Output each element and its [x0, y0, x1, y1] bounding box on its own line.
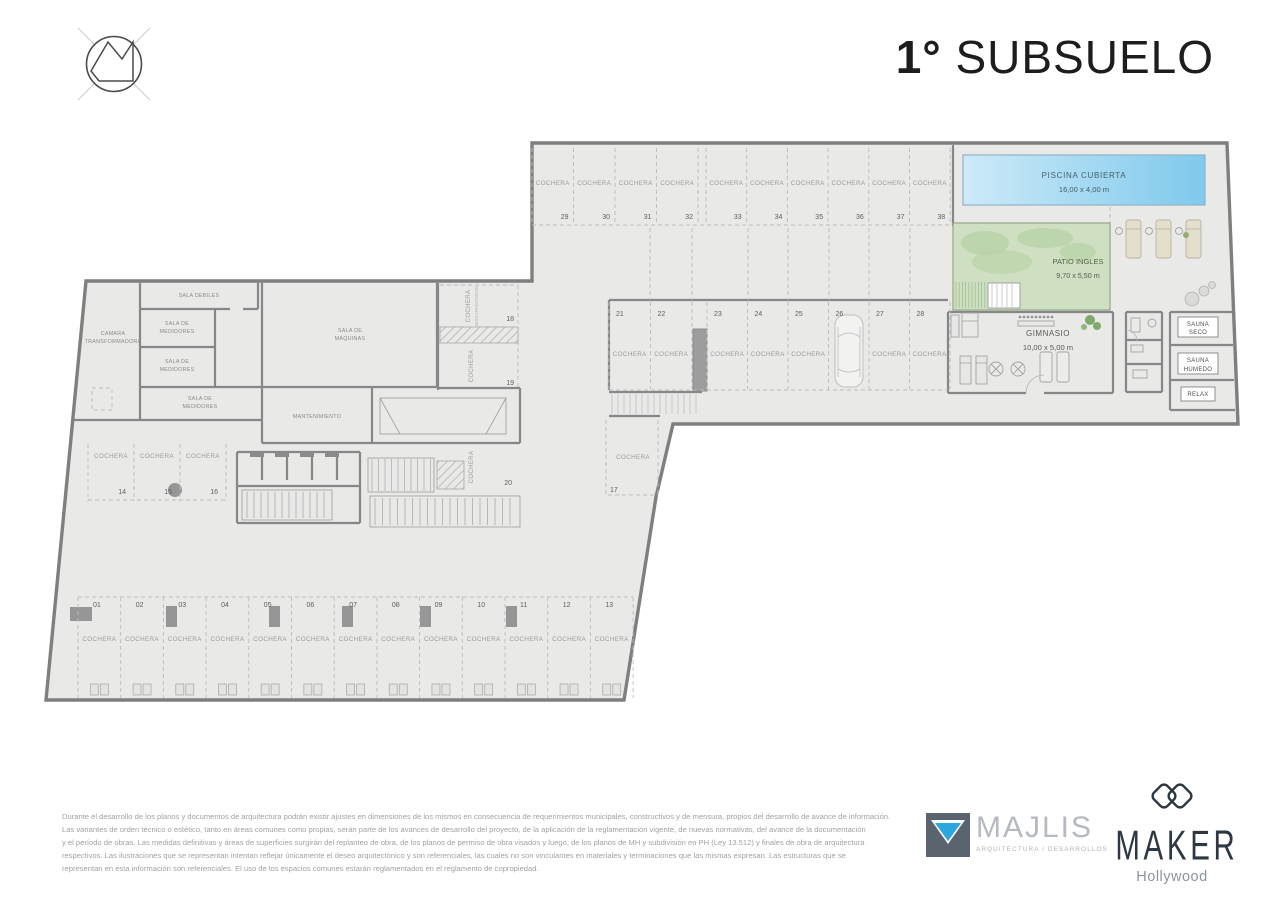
stall-label: COCHERA — [619, 180, 653, 187]
gym-dims: 10,00 x 5,00 m — [1023, 343, 1073, 352]
majlis-tagline: ARQUITECTURA / DESARROLLOS — [976, 846, 1108, 853]
wheel-stop — [432, 684, 440, 695]
pool-dims: 16,00 x 4,00 m — [1059, 185, 1109, 194]
wheel-stop — [186, 684, 194, 695]
stall-number: 16 — [210, 489, 218, 496]
stall-number: 09 — [435, 602, 443, 609]
stall-number: 05 — [264, 602, 272, 609]
ramp-hatch — [440, 327, 518, 343]
patio-dims: 9,70 x 5,50 m — [1056, 271, 1100, 280]
wheel-stop — [603, 684, 611, 695]
disclaimer-line: Las variantes de orden técnico o estétic… — [62, 824, 892, 837]
maker-sub: Hollywood — [1110, 869, 1234, 885]
stall-label: COCHERA — [125, 636, 159, 643]
stall-number: 37 — [897, 214, 905, 221]
medidores3-label-1: SALA DE — [188, 396, 212, 402]
maquinas-label-1: SALA DE — [338, 328, 362, 334]
stall18-label: COCHERA — [466, 290, 472, 323]
medidores3-label-2: MEDIDORES — [183, 404, 218, 410]
stall-label: COCHERA — [424, 636, 458, 643]
stall20-label: COCHERA — [469, 451, 475, 484]
stall-number: 01 — [93, 602, 101, 609]
stall-number: 08 — [392, 602, 400, 609]
stall-label: COCHERA — [253, 636, 287, 643]
wheel-stop — [143, 684, 151, 695]
stall-number: 11 — [520, 602, 527, 609]
stall-label: COCHERA — [613, 351, 647, 358]
stall-label: COCHERA — [168, 636, 202, 643]
elevator-shaft — [693, 329, 707, 391]
relax-label: RELAX — [1187, 392, 1208, 398]
stall-number: 27 — [876, 311, 884, 318]
disclaimer-line: respectivos. Las ilustraciones que se re… — [62, 850, 892, 863]
stall-label: COCHERA — [509, 636, 543, 643]
stall-number: 25 — [795, 311, 803, 318]
wheel-stop — [271, 684, 279, 695]
stall-number: 36 — [856, 214, 864, 221]
stall-number: 02 — [136, 602, 144, 609]
wheel-stop — [347, 684, 355, 695]
gym-name: GIMNASIO — [1026, 329, 1070, 338]
stall-number: 38 — [937, 214, 945, 221]
stall-label: COCHERA — [872, 180, 906, 187]
stall-number: 21 — [616, 311, 624, 318]
stall-label: COCHERA — [467, 636, 501, 643]
sala-debiles-label: SALA DEBILES — [179, 293, 220, 299]
stall-number: 15 — [164, 489, 172, 496]
stall17-label: COCHERA — [616, 454, 650, 461]
stall-number: 24 — [755, 311, 763, 318]
stall-number: 28 — [917, 311, 925, 318]
stall-number: 13 — [605, 602, 613, 609]
stall-label: COCHERA — [94, 453, 128, 460]
camara-label-1: CAMARA — [101, 331, 126, 337]
indoor-pool: PISCINA CUBIERTA 16,00 x 4,00 m — [963, 155, 1205, 205]
stall-label: COCHERA — [791, 180, 825, 187]
wheel-stop — [527, 684, 535, 695]
wheel-stop — [399, 684, 407, 695]
stall-label: COCHERA — [709, 180, 743, 187]
stall-number: 33 — [734, 214, 742, 221]
stall-number: 03 — [178, 602, 186, 609]
wheel-stop — [228, 684, 236, 695]
maker-name: MAKER — [1115, 822, 1238, 870]
stall-label: COCHERA — [831, 180, 865, 187]
english-patio: PATIO INGLES 9,70 x 5,50 m — [953, 223, 1110, 310]
stall-label: COCHERA — [536, 180, 570, 187]
stall20-number: 20 — [504, 480, 512, 487]
floor-plan: PISCINA CUBIERTA 16,00 x 4,00 m PATIO IN… — [0, 0, 1280, 905]
stall-number: 32 — [685, 214, 693, 221]
maker-icon — [1146, 779, 1198, 813]
stall-number: 12 — [563, 602, 571, 609]
stall18-sublabel: DISCAPACITADOS — [474, 286, 479, 326]
wheel-stop — [475, 684, 483, 695]
medidores2-label-2: MEDIDORES — [160, 367, 195, 373]
stall19-number: 19 — [506, 380, 514, 387]
wheel-stop — [357, 684, 365, 695]
majlis-name: MAJLIS — [976, 813, 1108, 843]
stall-number: 04 — [221, 602, 229, 609]
stall-label: COCHERA — [654, 351, 688, 358]
stall-label: COCHERA — [381, 636, 415, 643]
stall-label: COCHERA — [577, 180, 611, 187]
stall-number: 22 — [658, 311, 666, 318]
stall-number: 30 — [602, 214, 610, 221]
wheel-stop — [90, 684, 98, 695]
stall18-number: 18 — [506, 316, 514, 323]
pool-name: PISCINA CUBIERTA — [1042, 171, 1127, 180]
pool-loungers — [1116, 220, 1202, 258]
sauna-seco-label-1: SAUNA — [1187, 322, 1209, 328]
stall-number: 10 — [477, 602, 485, 609]
stall-label: COCHERA — [339, 636, 373, 643]
stall-label: COCHERA — [660, 180, 694, 187]
stall-label: COCHERA — [186, 453, 220, 460]
wheel-stop — [218, 684, 226, 695]
stall-label: COCHERA — [210, 636, 244, 643]
stall-number: 23 — [714, 311, 722, 318]
stall-number: 26 — [836, 311, 844, 318]
disclaimer-line: representan en esta información son refe… — [62, 863, 892, 876]
stall-label: COCHERA — [913, 351, 947, 358]
wheel-stop — [560, 684, 568, 695]
wheel-stop — [485, 684, 493, 695]
stall-label: COCHERA — [750, 180, 784, 187]
disclaimer-line: y el período de obras. Las medidas defin… — [62, 837, 892, 850]
stall-label: COCHERA — [791, 351, 825, 358]
patio-stairs — [988, 283, 1020, 308]
stair-hatch — [437, 461, 464, 489]
sauna-humedo-label-1: SAUNA — [1187, 358, 1209, 364]
stall-number: 06 — [307, 602, 315, 609]
majlis-icon — [926, 813, 970, 857]
car-icon — [835, 315, 863, 387]
disclaimer-line: Durante el desarrollo de los planos y do… — [62, 811, 892, 824]
wheel-stop — [389, 684, 397, 695]
medidores1-label-2: MEDIDORES — [160, 329, 195, 335]
stall-label: COCHERA — [710, 351, 744, 358]
wheel-stop — [100, 684, 108, 695]
wheel-stop — [133, 684, 141, 695]
wheel-stop — [442, 684, 450, 695]
wheel-stop — [570, 684, 578, 695]
stall-number: 29 — [561, 214, 569, 221]
disclaimer-text: Durante el desarrollo de los planos y do… — [62, 811, 892, 876]
wheel-stop — [176, 684, 184, 695]
stall-label: COCHERA — [872, 351, 906, 358]
maker-logo: MAKER Hollywood — [1110, 779, 1234, 885]
stall-label: COCHERA — [82, 636, 116, 643]
stall-number: 35 — [815, 214, 823, 221]
stall-number: 31 — [644, 214, 652, 221]
medidores1-label-1: SALA DE — [165, 321, 189, 327]
sauna-rooms: SAUNA SECO SAUNA HUMEDO RELAX — [1178, 317, 1218, 401]
wheel-stop — [613, 684, 621, 695]
stall-label: COCHERA — [595, 636, 629, 643]
stall-label: COCHERA — [751, 351, 785, 358]
mantenimiento-label: MANTENIMIENTO — [293, 414, 341, 420]
patio-name: PATIO INGLES — [1053, 257, 1104, 266]
wheel-stop — [304, 684, 312, 695]
majlis-logo: MAJLIS ARQUITECTURA / DESARROLLOS — [926, 813, 1108, 857]
wheel-stop — [314, 684, 322, 695]
stall19-label: COCHERA — [469, 350, 475, 383]
sauna-seco-label-2: SECO — [1189, 330, 1207, 336]
medidores2-label-1: SALA DE — [165, 359, 189, 365]
stall-number: 34 — [775, 214, 783, 221]
stall-label: COCHERA — [913, 180, 947, 187]
stall-number: 07 — [349, 602, 357, 609]
camara-label-2: TRANSFORMADORA — [85, 339, 142, 345]
wheel-stop — [517, 684, 525, 695]
wheel-stop — [261, 684, 269, 695]
stall-number: 14 — [118, 489, 126, 496]
stall-label: COCHERA — [140, 453, 174, 460]
sauna-humedo-label-2: HUMEDO — [1184, 367, 1212, 373]
stall17-number: 17 — [610, 487, 618, 494]
stall-label: COCHERA — [552, 636, 586, 643]
stall-label: COCHERA — [296, 636, 330, 643]
maquinas-label-2: MÁQUINAS — [335, 335, 366, 342]
